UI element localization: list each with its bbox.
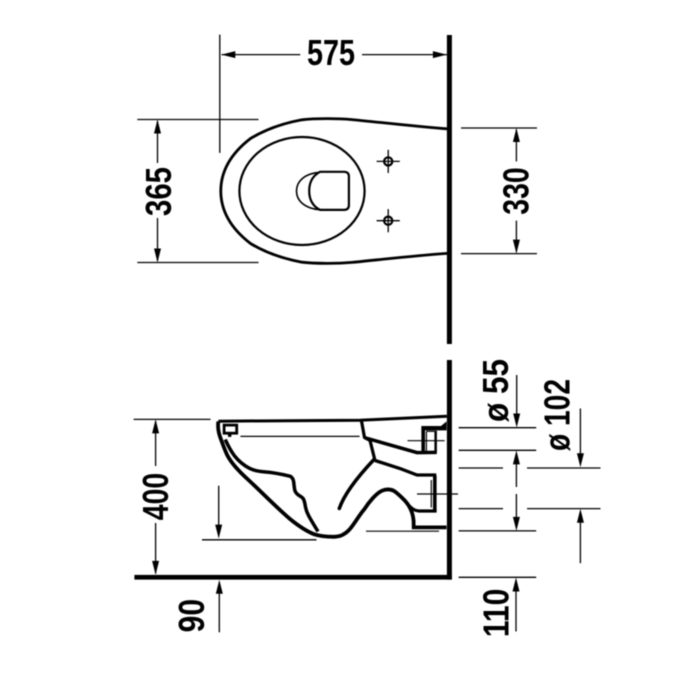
svg-text:400: 400	[135, 473, 176, 521]
svg-text:365: 365	[138, 167, 179, 216]
svg-text:110: 110	[476, 589, 517, 638]
svg-text:ø 55: ø 55	[475, 359, 516, 422]
svg-text:ø 102: ø 102	[537, 379, 578, 451]
svg-text:90: 90	[171, 599, 212, 633]
svg-text:575: 575	[307, 32, 355, 73]
svg-text:330: 330	[496, 167, 537, 215]
